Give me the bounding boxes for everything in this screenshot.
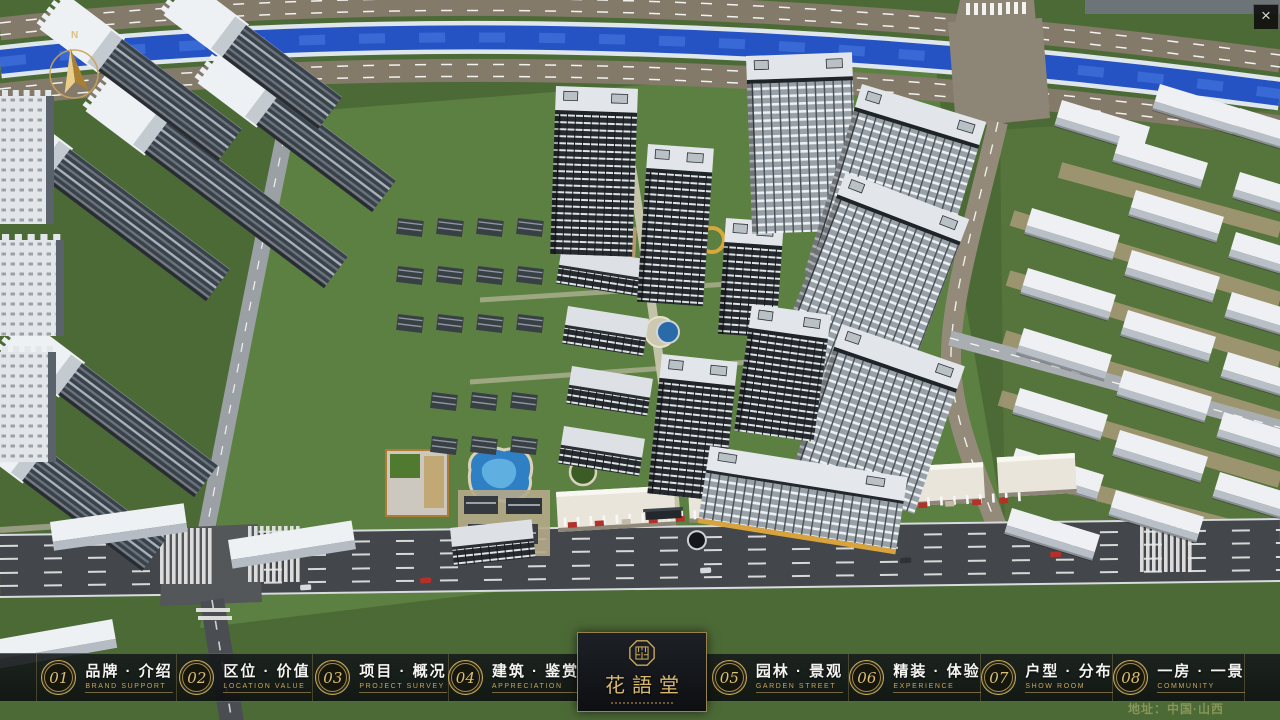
nav-label-zh: 园林 · 景观 [756,663,843,680]
nav-label-zh: 户型 · 分布 [1025,663,1112,680]
nav-item-07[interactable]: 07户型 · 分布SHOW ROOM [980,654,1113,701]
nav-number-badge: 02 [179,660,214,695]
nav-number-badge: 01 [41,660,76,695]
nav-number-badge: 04 [448,660,483,695]
nav-label-zh: 精装 · 体验 [893,663,980,680]
nav-label-zh: 项目 · 概况 [359,663,446,680]
nav-label-zh: 品牌 · 介绍 [85,663,172,680]
nav-label-en: PROJECT SURVEY [359,682,446,693]
nav-label-en: SHOW ROOM [1025,682,1112,693]
nav-label-en: GARDEN STREET [756,682,843,693]
nav-label-zh: 建筑 · 鉴赏 [492,663,579,680]
nav-item-05[interactable]: 05园林 · 景观GARDEN STREET [707,654,848,701]
logo-subtitle-rule [611,702,673,704]
logo-panel[interactable]: 花語堂 [577,632,707,712]
compass-arrow-icon [58,47,88,94]
nav-label-zh: 区位 · 价值 [223,663,310,680]
nav-number-badge: 03 [315,660,350,695]
nav-item-02[interactable]: 02区位 · 价值LOCATION VALUE [176,654,313,701]
aerial-view-canvas[interactable] [0,0,1280,720]
seal-icon [627,640,657,666]
nav-number-badge: 05 [712,660,747,695]
close-button[interactable]: × [1253,4,1279,30]
nav-number-badge: 07 [981,660,1016,695]
bridge-junction [948,0,1050,128]
nav-label-en: BRAND SUPPORT [85,682,172,693]
nav-item-04[interactable]: 04建筑 · 鉴赏APPRECIATION [448,654,578,701]
logo-title: 花語堂 [598,669,686,698]
nav-item-03[interactable]: 03项目 · 概况PROJECT SURVEY [312,654,449,701]
nav-item-06[interactable]: 06精装 · 体验EXPERIENCE [848,654,981,701]
nav-item-01[interactable]: 01品牌 · 介绍BRAND SUPPORT [36,654,177,701]
project-address: 地址：中国·山西 [1128,700,1268,717]
nav-label-en: APPRECIATION [492,682,579,693]
nav-number-badge: 06 [849,660,884,695]
presentation-stage: N × 01品牌 · 介绍BRAND SUPPORT02区位 · 价值LOCAT… [0,0,1280,720]
nav-number-badge: 08 [1113,660,1148,695]
nav-label-en: COMMUNITY [1157,682,1244,693]
compass-north-label: N [71,30,78,41]
nav-label-en: EXPERIENCE [893,682,980,693]
nav-label-zh: 一房 · 一景 [1157,663,1244,680]
nav-separator [1244,654,1245,701]
compass[interactable]: N [44,26,104,112]
nav-item-08[interactable]: 08一房 · 一景COMMUNITY [1112,654,1245,701]
nav-label-en: LOCATION VALUE [223,682,310,693]
